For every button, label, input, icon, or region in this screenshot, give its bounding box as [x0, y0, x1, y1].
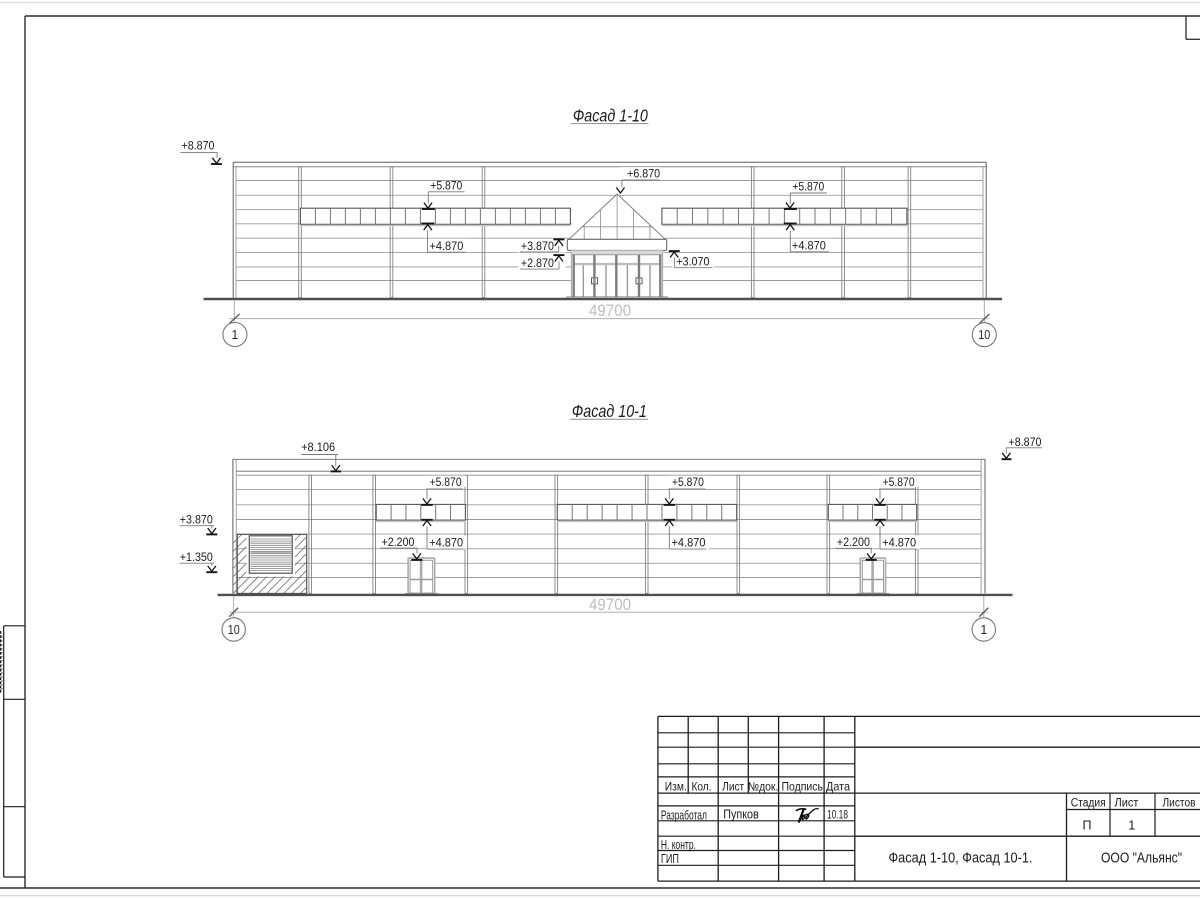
svg-text:1: 1: [231, 328, 238, 342]
svg-text:+5.870: +5.870: [672, 477, 704, 489]
svg-text:10.18: 10.18: [827, 807, 848, 821]
svg-text:ООО "Альянс": ООО "Альянс": [1101, 851, 1182, 867]
svg-text:Лист: Лист: [722, 780, 744, 794]
svg-text:+1.350: +1.350: [180, 552, 213, 564]
svg-text:+3.870: +3.870: [180, 514, 213, 526]
svg-text:Лист: Лист: [1115, 797, 1140, 809]
svg-text:П: П: [1083, 819, 1092, 833]
svg-text:Дата: Дата: [826, 780, 850, 794]
svg-text:Фасад 10-1: Фасад 10-1: [572, 401, 647, 421]
svg-text:+5.870: +5.870: [883, 477, 915, 489]
svg-text:+3.870: +3.870: [521, 241, 554, 253]
svg-text:Разработал: Разработал: [661, 808, 707, 822]
svg-text:№док.: №док.: [748, 780, 779, 794]
svg-text:Фасад 1-10: Фасад 1-10: [573, 106, 648, 126]
svg-text:+2.870: +2.870: [521, 258, 554, 270]
svg-text:Кол.: Кол.: [692, 780, 712, 794]
svg-text:+5.870: +5.870: [430, 477, 462, 489]
svg-text:+4.870: +4.870: [429, 241, 463, 253]
svg-text:+6.870: +6.870: [627, 168, 660, 180]
svg-text:+4.870: +4.870: [429, 537, 463, 549]
svg-text:49700: 49700: [589, 596, 631, 614]
svg-text:Пупков: Пупков: [723, 806, 759, 821]
svg-text:Фасад 1-10, Фасад 10-1.: Фасад 1-10, Фасад 10-1.: [889, 851, 1033, 867]
svg-text:Листов: Листов: [1163, 797, 1196, 809]
svg-text:Стадия: Стадия: [1071, 797, 1106, 809]
svg-text:Подпись: Подпись: [782, 780, 824, 794]
svg-text:+5.870: +5.870: [430, 181, 462, 193]
svg-text:1: 1: [980, 623, 987, 637]
svg-text:1: 1: [1128, 819, 1135, 833]
svg-text:+4.870: +4.870: [882, 537, 916, 549]
svg-text:Н. контр.: Н. контр.: [661, 838, 696, 852]
svg-text:49700: 49700: [589, 302, 631, 320]
svg-text:+2.200: +2.200: [382, 537, 415, 549]
svg-text:+4.870: +4.870: [792, 240, 826, 252]
svg-text:+3.070: +3.070: [676, 257, 709, 269]
svg-text:10: 10: [228, 623, 240, 637]
svg-text:+4.870: +4.870: [672, 537, 706, 549]
svg-text:+8.870: +8.870: [182, 141, 215, 153]
svg-text:Изм.: Изм.: [665, 780, 687, 794]
svg-text:+2.200: +2.200: [837, 537, 870, 549]
svg-text:+5.870: +5.870: [792, 181, 824, 193]
svg-text:+8.106: +8.106: [301, 442, 335, 454]
svg-text:10: 10: [978, 328, 990, 342]
svg-text:ГИП: ГИП: [661, 852, 679, 866]
